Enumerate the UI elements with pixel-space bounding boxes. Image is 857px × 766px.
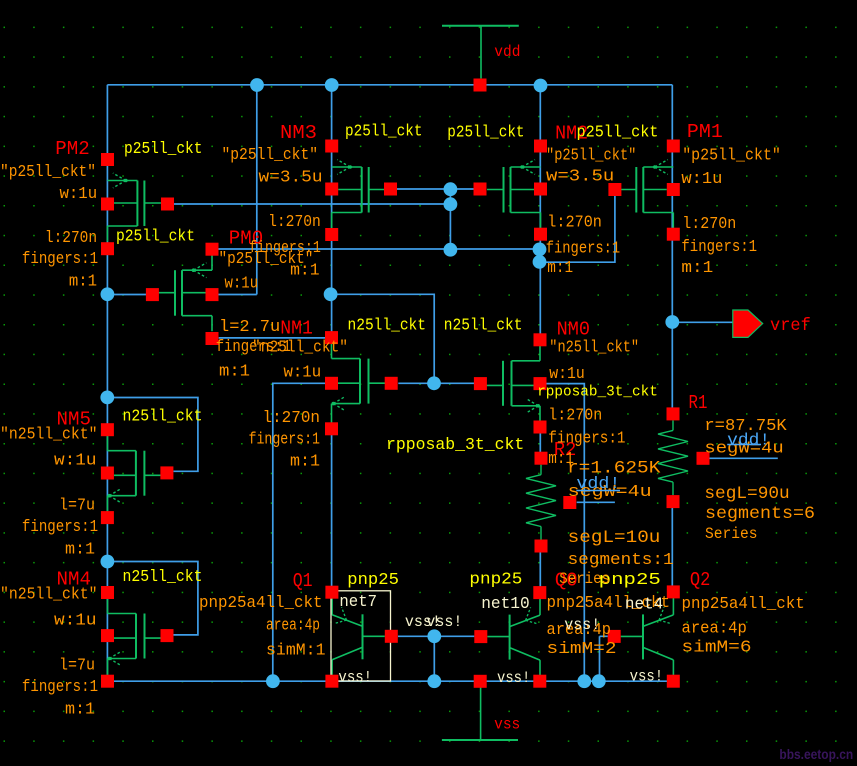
svg-text:"n25ll_ckt": "n25ll_ckt" [549, 339, 639, 357]
svg-text:fingers:1: fingers:1 [22, 250, 98, 268]
svg-text:NM0: NM0 [557, 319, 590, 341]
svg-text:w:1u: w:1u [549, 365, 585, 383]
svg-text:m:1: m:1 [65, 701, 95, 719]
svg-text:vss: vss [494, 716, 520, 734]
svg-text:vss!: vss! [338, 668, 372, 686]
svg-text:l=7u: l=7u [59, 497, 95, 515]
svg-text:vss!: vss! [497, 669, 530, 687]
svg-text:w:1u: w:1u [681, 170, 722, 188]
svg-text:l:270n: l:270n [45, 229, 97, 247]
svg-text:m:1: m:1 [681, 259, 713, 277]
svg-text:PM1: PM1 [687, 121, 723, 143]
svg-text:m:1: m:1 [547, 259, 573, 277]
svg-text:segL=10u: segL=10u [568, 528, 661, 548]
svg-text:l=7u: l=7u [59, 657, 95, 675]
svg-text:"p25ll_ckt": "p25ll_ckt" [222, 146, 319, 164]
svg-text:simM=2: simM=2 [547, 640, 617, 659]
svg-text:"p25ll_ckt": "p25ll_ckt" [0, 163, 96, 181]
svg-text:vss!: vss! [630, 667, 664, 685]
svg-text:p25ll_ckt: p25ll_ckt [124, 140, 203, 158]
svg-text:pnp25a4ll_ckt: pnp25a4ll_ckt [682, 595, 805, 613]
svg-text:"p25ll_ckt": "p25ll_ckt" [682, 147, 781, 165]
svg-text:w:1u: w:1u [225, 275, 259, 293]
svg-text:net4: net4 [625, 596, 663, 615]
svg-text:w:1u: w:1u [54, 612, 97, 630]
svg-text:R1: R1 [689, 392, 708, 414]
svg-text:PM2: PM2 [55, 138, 90, 160]
svg-text:area:4p: area:4p [266, 617, 320, 635]
svg-text:simM:1: simM:1 [266, 642, 326, 660]
svg-text:fingers:1: fingers:1 [681, 238, 757, 256]
svg-text:net10: net10 [481, 595, 530, 614]
svg-text:rpposab_3t_ckt: rpposab_3t_ckt [537, 384, 658, 401]
svg-text:area:4p: area:4p [682, 619, 747, 638]
svg-text:"n25ll_ckt": "n25ll_ckt" [0, 426, 98, 444]
svg-text:l=2.7u: l=2.7u [219, 318, 280, 336]
svg-text:fingers:1: fingers:1 [249, 431, 321, 449]
svg-text:w:1u: w:1u [54, 452, 97, 470]
svg-text:p25ll_ckt: p25ll_ckt [345, 123, 423, 141]
svg-text:"n25ll_ckt": "n25ll_ckt" [0, 586, 98, 604]
svg-text:l:270n: l:270n [263, 409, 321, 427]
svg-text:fingers:1: fingers:1 [548, 429, 625, 447]
svg-text:w=3.5u: w=3.5u [259, 169, 323, 187]
svg-text:simM=6: simM=6 [682, 638, 752, 657]
svg-text:p25ll_ckt: p25ll_ckt [116, 228, 195, 246]
svg-text:segL=90u: segL=90u [704, 484, 789, 504]
svg-text:l:270n: l:270n [547, 214, 602, 232]
svg-text:m:1: m:1 [69, 273, 97, 291]
svg-text:p25ll_ckt: p25ll_ckt [447, 123, 524, 141]
svg-text:Series: Series [705, 525, 758, 543]
svg-text:Q2: Q2 [690, 569, 711, 591]
svg-text:"n25ll_ckt": "n25ll_ckt" [252, 339, 348, 357]
svg-text:m:1: m:1 [290, 453, 320, 471]
svg-text:w=3.5u: w=3.5u [546, 167, 614, 185]
svg-text:l:270n: l:270n [548, 407, 602, 425]
svg-text:net7: net7 [339, 593, 377, 612]
svg-text:pnp25a4ll_ckt: pnp25a4ll_ckt [199, 594, 323, 612]
svg-text:l:270n: l:270n [268, 213, 321, 231]
svg-text:fingers:1: fingers:1 [22, 518, 98, 536]
svg-text:m:1: m:1 [65, 541, 95, 559]
svg-text:"p25ll_ckt": "p25ll_ckt" [219, 250, 314, 268]
svg-text:segments:1: segments:1 [568, 551, 674, 570]
svg-text:n25ll_ckt: n25ll_ckt [444, 317, 523, 335]
svg-text:segments=6: segments=6 [705, 504, 815, 524]
svg-text:n25ll_ckt: n25ll_ckt [348, 317, 427, 335]
svg-text:w:1u: w:1u [60, 185, 98, 203]
svg-text:pnp25: pnp25 [469, 571, 522, 589]
svg-text:l:270n: l:270n [682, 215, 736, 233]
svg-text:vss!: vss! [564, 616, 600, 634]
svg-text:"p25ll_ckt": "p25ll_ckt" [546, 146, 636, 164]
svg-text:fingers:1: fingers:1 [546, 240, 620, 258]
svg-text:NM1: NM1 [280, 318, 313, 340]
svg-text:vdd: vdd [494, 43, 520, 61]
svg-text:rpposab_3t_ckt: rpposab_3t_ckt [386, 436, 524, 455]
svg-text:Series: Series [559, 570, 610, 588]
svg-text:NM3: NM3 [280, 122, 317, 144]
svg-text:w:1u: w:1u [284, 364, 322, 382]
svg-text:vref: vref [770, 316, 811, 336]
svg-text:p25ll_ckt: p25ll_ckt [577, 123, 659, 141]
svg-text:pnp25: pnp25 [347, 571, 399, 589]
svg-text:n25ll_ckt: n25ll_ckt [123, 408, 203, 426]
svg-text:n25ll_ckt: n25ll_ckt [123, 568, 203, 586]
svg-text:vdd!: vdd! [727, 431, 770, 449]
svg-text:Q1: Q1 [293, 570, 313, 592]
svg-text:vss!: vss! [426, 613, 462, 631]
svg-text:m:1: m:1 [219, 363, 250, 381]
svg-text:fingers:1: fingers:1 [22, 678, 98, 696]
svg-text:bbs.eetop.cn: bbs.eetop.cn [779, 747, 853, 762]
